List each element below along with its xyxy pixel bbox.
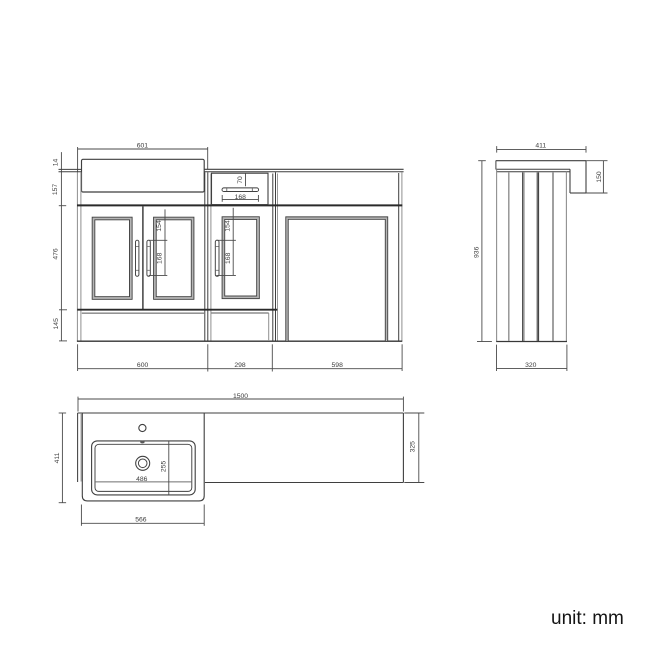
svg-text:936: 936 (474, 246, 481, 258)
svg-text:476: 476 (52, 248, 59, 260)
svg-text:325: 325 (409, 441, 416, 453)
svg-text:598: 598 (332, 362, 344, 369)
svg-text:298: 298 (234, 362, 246, 369)
svg-text:154: 154 (156, 220, 163, 232)
svg-text:411: 411 (54, 452, 61, 463)
svg-text:320: 320 (525, 362, 537, 369)
svg-text:601: 601 (137, 142, 149, 149)
svg-text:168: 168 (225, 252, 232, 264)
svg-text:145: 145 (53, 318, 60, 330)
svg-text:411: 411 (535, 143, 546, 150)
svg-text:168: 168 (156, 252, 163, 264)
svg-text:566: 566 (135, 517, 147, 524)
svg-text:150: 150 (596, 171, 603, 183)
svg-text:168: 168 (235, 194, 247, 201)
svg-text:157: 157 (52, 184, 59, 196)
svg-text:600: 600 (137, 362, 149, 369)
svg-text:unit: mm: unit: mm (551, 608, 624, 629)
svg-text:1500: 1500 (233, 393, 248, 400)
svg-text:486: 486 (136, 476, 148, 483)
svg-text:255: 255 (160, 461, 167, 473)
svg-text:70: 70 (237, 176, 244, 184)
svg-text:154: 154 (225, 220, 232, 232)
svg-text:14: 14 (52, 159, 59, 167)
